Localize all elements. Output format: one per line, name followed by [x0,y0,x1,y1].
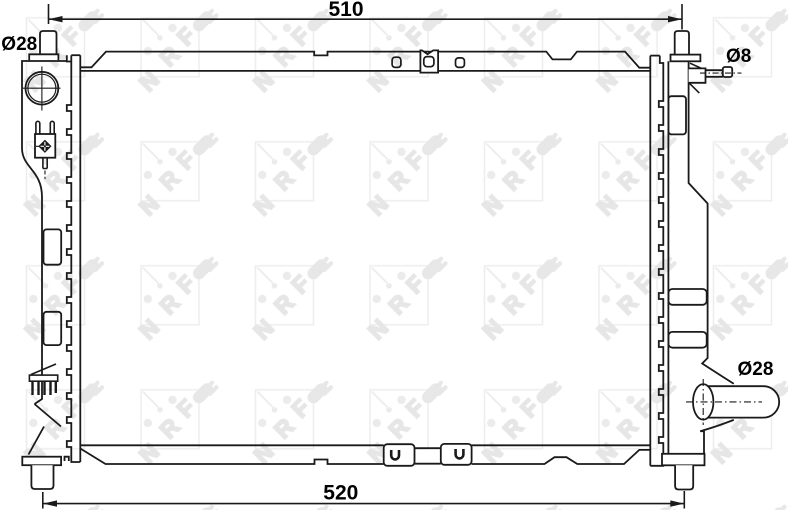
svg-text:520: 520 [323,482,358,505]
svg-text:Ø8: Ø8 [726,46,751,67]
svg-text:Ø28: Ø28 [1,34,37,55]
svg-text:Ø28: Ø28 [738,359,774,380]
svg-text:510: 510 [328,0,363,21]
